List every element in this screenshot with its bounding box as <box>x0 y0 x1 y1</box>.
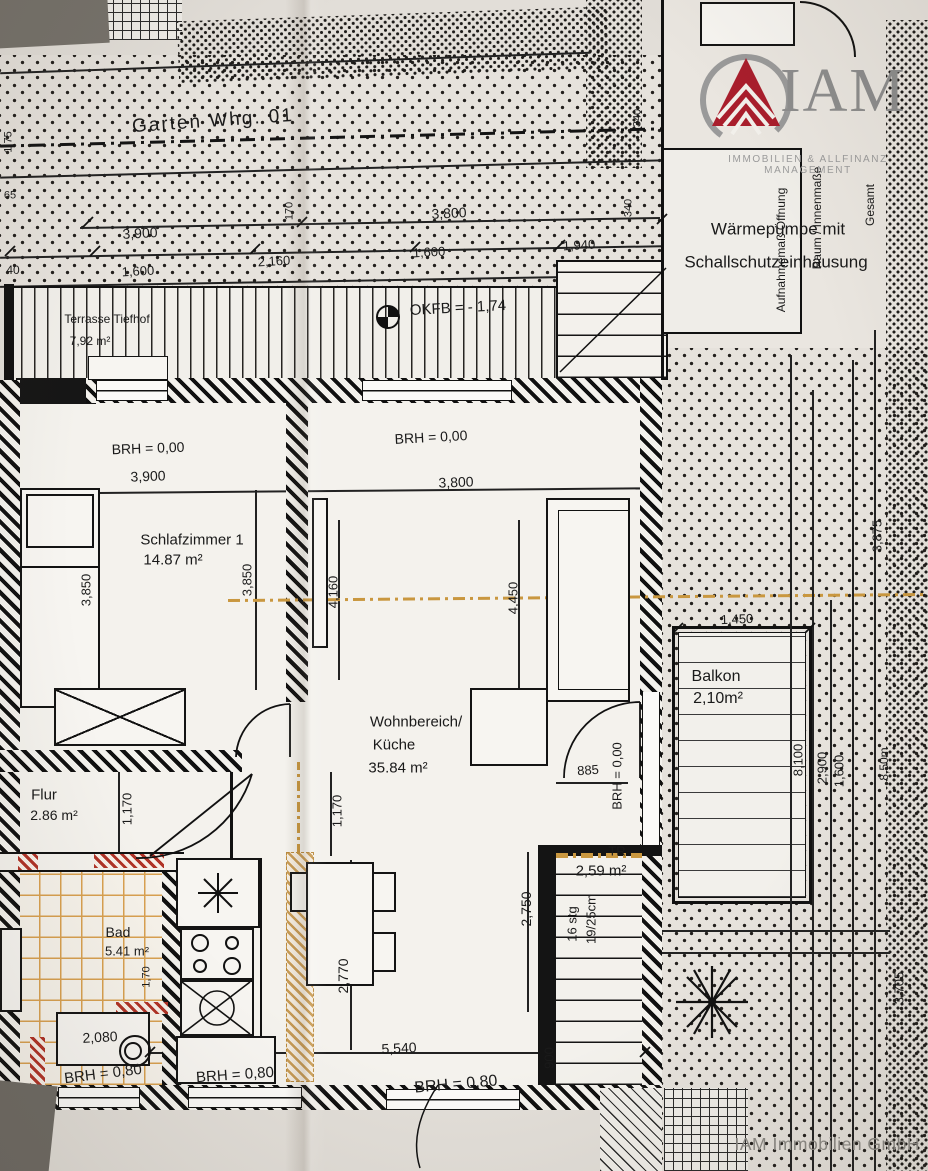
note-aufnahme: Aufnahmemaß Öffnung <box>775 188 787 313</box>
dim-340-upper: 340 <box>633 109 644 127</box>
level-note: OKFB = - 1,74 <box>410 298 507 318</box>
sill-height-5: BRH = 0,80 <box>63 1062 142 1086</box>
dim-3900-room: 3,900 <box>130 468 166 483</box>
room-schlafzimmer-name: Schlafzimmer 1 <box>140 533 243 548</box>
dim-1-75: 1,75 <box>4 131 15 152</box>
room-bad-area: 5.41 m² <box>105 945 149 958</box>
dim-1600-right: 1,600 <box>833 755 846 788</box>
dim-2160: 2,160 <box>257 254 290 269</box>
dim-1170-b: 1,170 <box>331 795 344 828</box>
room-bad-name: Bad <box>106 925 131 939</box>
dim-340-lower: 340 <box>624 199 635 217</box>
dim-3900-site: 3,900 <box>122 225 158 241</box>
room-wohnbereich-area: 35.84 m² <box>368 761 427 776</box>
room-wohnbereich-name2: Küche <box>373 738 416 753</box>
room-balkon-name: Balkon <box>692 669 741 685</box>
dim-3800-site: 3,800 <box>431 205 467 221</box>
room-wohnbereich-name1: Wohnbereich/ <box>370 715 462 730</box>
dim-3875: 3,875 <box>871 520 884 553</box>
note-raum-innenmasse: Raum / Innenmaße <box>811 167 823 270</box>
room-tr-area: 2,59 m² <box>576 864 627 879</box>
dim-8100: 8,100 <box>792 744 805 777</box>
dim-170: 170 <box>285 202 296 220</box>
dim-5540: 5,540 <box>381 1040 417 1056</box>
logo-subtitle: IMMOBILIEN & ALLFINANZ MANAGEMENT <box>688 154 928 176</box>
iam-logo: IAM IMMOBILIEN & ALLFINANZ MANAGEMENT <box>688 52 928 177</box>
room-schlafzimmer-area: 14.87 m² <box>143 553 202 568</box>
dim-2080: 2,080 <box>82 1029 118 1045</box>
sill-height-4: BRH = 0,80 <box>414 1073 498 1096</box>
garden-label: Garten Whg. 01 <box>131 106 294 136</box>
dim-2900: 2,900 <box>816 752 829 785</box>
dim-3800-room: 3,800 <box>438 474 474 489</box>
dim-1170-a: 1,170 <box>121 793 134 826</box>
dim-4450: 4,450 <box>507 582 520 615</box>
stair-riser: 19/25cm <box>585 894 598 944</box>
dim-2770: 2,770 <box>336 958 350 993</box>
dim-885: 885 <box>577 763 600 777</box>
dim-1-70: 1,70 <box>142 966 153 987</box>
dim-1600-mid: 1,600 <box>412 245 445 260</box>
dim-3705: 3,705 <box>893 972 906 1005</box>
dim-900: 900 <box>543 1047 556 1069</box>
sill-height-3: BRH = 0,00 <box>611 742 624 810</box>
note-gesamt: Gesamt <box>864 184 876 226</box>
watermark-text: IAM Immobilien GmbH <box>734 1134 920 1155</box>
stair-steps: 16 stg <box>566 906 579 941</box>
sill-height-1: BRH = 0,00 <box>111 440 184 457</box>
dim-40: 40 <box>6 264 19 276</box>
dim-1450: 1,450 <box>721 612 754 626</box>
dim-1940: 1,940 <box>562 238 595 253</box>
room-balkon-area: 2,10m² <box>693 691 743 707</box>
dim-3850-b: 3,850 <box>241 564 254 597</box>
logo-wordmark: IAM <box>780 56 907 127</box>
room-flur-area: 2.86 m² <box>30 808 77 822</box>
dim-850m: 8,50m <box>878 747 890 780</box>
dim-2750: 2,750 <box>519 891 533 926</box>
dim-1600-left: 1,600 <box>121 264 154 279</box>
floor-plan: Garten Whg. 011,75653,9001702,1601,60040… <box>0 0 928 1171</box>
sill-height-6: BRH = 0,80 <box>196 1065 275 1085</box>
room-tr-name: TR <box>608 845 625 858</box>
dim-65: 65 <box>4 191 16 202</box>
room-terrasse-area: 7,92 m² <box>70 335 111 347</box>
room-terrasse-name: Terrasse Tiefhof <box>64 313 149 325</box>
sill-height-2: BRH = 0,00 <box>394 428 467 446</box>
dim-4160: 4,160 <box>327 576 340 609</box>
dim-3850-a: 3,850 <box>80 574 93 607</box>
room-flur-name: Flur <box>31 788 57 803</box>
